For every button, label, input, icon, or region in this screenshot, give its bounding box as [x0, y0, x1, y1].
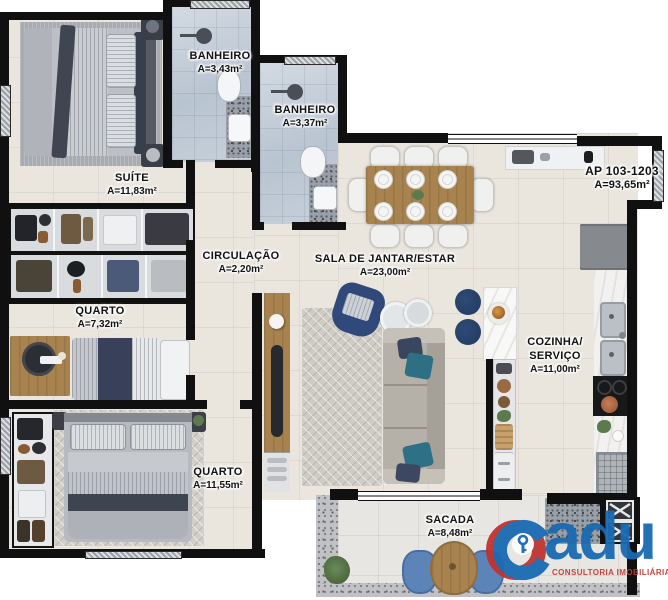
closet-hanging-3 — [151, 260, 187, 292]
wardrobe-item-7 — [32, 520, 45, 542]
shower-arm-1 — [180, 34, 197, 37]
wardrobe-item-4 — [17, 460, 45, 484]
burner-1 — [597, 380, 612, 395]
plate — [438, 170, 457, 189]
logo-tagline: CONSULTORIA IMOBILIÁRIA — [552, 568, 668, 577]
plate — [406, 202, 425, 221]
kitchen-plant — [597, 420, 611, 433]
wardrobe-item-2 — [18, 444, 30, 454]
sofa-pillow-navy-2 — [395, 463, 421, 483]
wall-suite-top — [0, 12, 172, 20]
window-suite — [0, 85, 11, 137]
wall-living-bottom-a — [330, 489, 358, 500]
shelf-plant — [497, 410, 511, 422]
room-name: BANHEIRO — [255, 104, 355, 118]
wall-bath2-bottom-b — [292, 222, 346, 230]
suite-pillow-2 — [106, 94, 136, 148]
wardrobe-item-3 — [32, 442, 46, 454]
toilet-2 — [300, 146, 326, 178]
window-balcony-glass — [358, 491, 480, 501]
living-rug — [302, 308, 382, 486]
closet-hat-2 — [67, 261, 85, 277]
banheiro1-label: BANHEIRO A=3,43m² — [170, 50, 270, 76]
table-centerpiece — [412, 190, 424, 200]
suite-label: SUÍTE A=11,83m² — [82, 172, 182, 198]
window-bath1 — [190, 0, 250, 9]
room-area: A=3,43m² — [170, 64, 270, 77]
apartment-number: AP 103-1203 — [572, 164, 668, 179]
hall-closet — [9, 253, 195, 300]
room-area: A=23,00m² — [310, 267, 460, 280]
closet-hanging-1 — [16, 260, 52, 292]
room-name: QUARTO — [168, 466, 268, 480]
faucet — [619, 332, 626, 339]
shower-head-2 — [287, 84, 303, 100]
plate — [406, 170, 425, 189]
wall-closet-top — [8, 203, 195, 207]
apartment-label: AP 103-1203 A=93,65m² — [572, 164, 668, 193]
wall-bath2-left — [252, 168, 260, 230]
room-name: SUÍTE — [82, 172, 182, 186]
wardrobe-item-1 — [17, 418, 43, 440]
tv-screen — [271, 345, 283, 437]
quarto2-pillow-2 — [130, 424, 186, 450]
closet-shoes-2 — [73, 279, 81, 293]
circulacao-label: CIRCULAÇÃO A=2,20m² — [183, 250, 299, 276]
island-back-wall — [486, 359, 493, 495]
sink-drain-2 — [609, 352, 614, 357]
quarto2-headboard — [64, 413, 192, 422]
quarto1-bed-sheet — [132, 338, 160, 400]
suite-bed-foot — [24, 28, 52, 156]
closet-hat — [39, 214, 51, 226]
quarto1-bed-foot — [72, 338, 98, 400]
cozinha-label: COZINHA/ SERVIÇO A=11,00m² — [505, 336, 605, 376]
wall-quarto-divider — [8, 400, 197, 409]
wall-bath1-bottom-a — [163, 160, 183, 168]
cadu-logo: adu CONSULTORIA IMOBILIÁRIA — [468, 502, 668, 598]
shower-arm-2 — [271, 90, 288, 93]
logo-wordmark: adu — [544, 503, 654, 570]
fruits — [492, 306, 505, 319]
sofa-seam-2 — [384, 427, 427, 429]
coffee-machine — [512, 150, 534, 164]
quarto2-label: QUARTO A=11,55m² — [168, 466, 268, 492]
quarto2-pillow-1 — [70, 424, 126, 450]
closet-clothes-1 — [15, 215, 37, 241]
quarto2-wardrobe — [12, 412, 54, 548]
closet-clothes-4 — [145, 213, 189, 245]
balcony-table-center — [449, 563, 456, 570]
stool-1 — [455, 289, 481, 315]
room-area: A=3,37m² — [255, 118, 355, 131]
suite-pillow-1 — [106, 34, 136, 88]
room-area: A=11,55m² — [168, 480, 268, 493]
balcony-plant — [324, 556, 350, 584]
wall-living-bottom-b — [480, 489, 522, 500]
tv-console-sphere-decor — [269, 314, 284, 329]
wall-quarto1-right-a — [186, 304, 195, 340]
wardrobe-item-6 — [17, 520, 30, 542]
pantry-shelf — [493, 359, 516, 497]
stool-2 — [455, 319, 481, 345]
floor-plan: SUÍTE A=11,83m² BANHEIRO A=3,43m² BANHEI… — [0, 0, 668, 600]
copper-pan — [601, 396, 618, 413]
sala-label: SALA DE JANTAR/ESTAR A=23,00m² — [310, 253, 460, 279]
wall-kitchen-right — [627, 200, 637, 500]
suite-lamp — [146, 20, 159, 33]
shelf-jar-2 — [498, 396, 510, 408]
wall-bath1-right — [251, 0, 260, 172]
sofa-pillow-teal-1 — [404, 352, 434, 380]
room-name: COZINHA/ — [505, 336, 605, 350]
shelf-basket — [495, 424, 513, 450]
wall-bath2-bottom-a — [252, 222, 264, 230]
room-area: A=7,32m² — [50, 319, 150, 332]
side-table-2 — [404, 299, 432, 327]
wall-corridor-bottom-a — [197, 400, 207, 409]
room-area: A=11,83m² — [82, 186, 182, 199]
apartment-area: A=93,65m² — [572, 179, 668, 193]
quarto2-duvet-bottom — [68, 511, 188, 539]
quarto2-duvet-dark-band — [68, 494, 188, 511]
wall-living-top — [338, 133, 448, 143]
quarto1-label: QUARTO A=7,32m² — [50, 305, 150, 331]
closet-linens — [103, 215, 137, 245]
kitchen-plate — [612, 430, 624, 442]
closet-hanging-2 — [107, 260, 139, 292]
quarto1-bed-navy — [98, 338, 132, 400]
suite-vase — [146, 148, 160, 162]
shower-head-1 — [196, 28, 212, 44]
wall-tv — [252, 293, 262, 557]
dining-chair — [370, 224, 400, 248]
window-living-top — [448, 134, 577, 144]
window-quarto2-left — [0, 417, 11, 475]
suite-headboard — [146, 28, 156, 156]
room-name: QUARTO — [50, 305, 150, 319]
window-quarto2-bottom — [85, 551, 182, 559]
wall-corridor-bottom-b — [240, 400, 257, 409]
window-bath2 — [284, 56, 336, 65]
washbasin-1 — [228, 114, 251, 142]
burner-2 — [612, 380, 627, 395]
refrigerator — [580, 224, 628, 270]
room-name: BANHEIRO — [170, 50, 270, 64]
room-name: SALA DE JANTAR/ESTAR — [310, 253, 460, 267]
dining-chair — [438, 224, 468, 248]
kettle — [584, 151, 593, 163]
wall-suite-right-a — [186, 160, 195, 205]
suite-closet — [9, 207, 195, 253]
room-area: A=2,20m² — [183, 264, 299, 277]
shelf-jar-1 — [497, 379, 511, 393]
wall-quarto1-top — [8, 298, 195, 304]
room-name: SERVIÇO — [505, 350, 605, 364]
quarto1-desk-cup — [58, 352, 66, 360]
laundry-tank — [596, 452, 630, 496]
plate — [374, 202, 393, 221]
washbasin-2 — [313, 186, 337, 210]
wardrobe-item-5 — [18, 490, 46, 518]
wall-bath1-bottom-b — [215, 160, 260, 168]
closet-clothes-2 — [61, 214, 81, 244]
plate — [438, 202, 457, 221]
sink-drain-1 — [609, 314, 614, 319]
quarto2-plant — [193, 415, 204, 426]
dining-chair — [404, 224, 434, 248]
wall-kitchen-top — [577, 136, 662, 146]
room-area: A=11,00m² — [505, 364, 605, 377]
closet-clothes-3 — [83, 217, 93, 241]
wall-bath1-left — [163, 0, 172, 168]
closet-shoes-1 — [38, 231, 48, 243]
room-name: CIRCULAÇÃO — [183, 250, 299, 264]
plate — [374, 170, 393, 189]
sofa-seam-1 — [384, 384, 427, 386]
banheiro2-label: BANHEIRO A=3,37m² — [255, 104, 355, 130]
